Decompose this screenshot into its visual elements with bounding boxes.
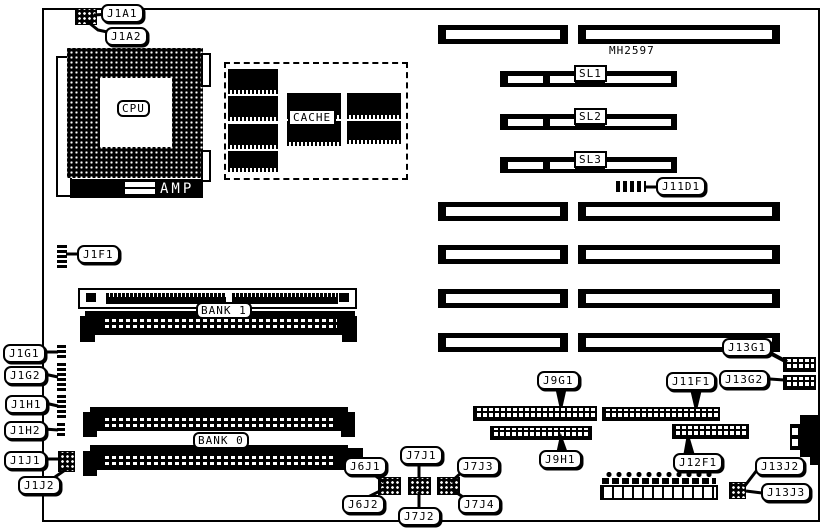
cache-label: CACHE	[288, 109, 336, 126]
j13g1-label: J13G1	[722, 338, 772, 357]
j1g1-label: J1G1	[3, 344, 46, 363]
j1f1-label: J1F1	[77, 245, 120, 264]
j1j1-label: J1J1	[4, 451, 47, 470]
sl2-label: SL2	[574, 108, 607, 125]
j13j2-label: J13J2	[755, 457, 805, 476]
motherboard-diagram: CPU AMP CACHE MH2597 SL1 SL2	[0, 0, 826, 532]
j6j2-label: J6J2	[342, 495, 385, 514]
bank1-label: BANK 1	[196, 302, 252, 319]
j7j2-label: J7J2	[398, 507, 441, 526]
bank0-label: BANK 0	[193, 432, 249, 449]
j7j4-label: J7J4	[458, 495, 501, 514]
j1j2-label: J1J2	[18, 476, 61, 495]
j1h1-label: J1H1	[5, 395, 48, 414]
j6j1-label: J6J1	[344, 457, 387, 476]
j9g1-label: J9G1	[537, 371, 580, 390]
j1a2-label: J1A2	[105, 27, 148, 46]
j11d1-label: J11D1	[656, 177, 706, 196]
cpu-label: CPU	[117, 100, 150, 117]
j13g2-label: J13G2	[719, 370, 769, 389]
j1a1-label: J1A1	[101, 4, 144, 23]
j1h2-label: J1H2	[4, 421, 47, 440]
j1g2-label: J1G2	[4, 366, 47, 385]
j12f1-label: J12F1	[673, 453, 723, 472]
j7j3-label: J7J3	[457, 457, 500, 476]
j7j1-label: J7J1	[400, 446, 443, 465]
j9h1-label: J9H1	[539, 450, 582, 469]
j13j3-label: J13J3	[761, 483, 811, 502]
sl1-label: SL1	[574, 65, 607, 82]
j11f1-label: J11F1	[666, 372, 716, 391]
sl3-label: SL3	[574, 151, 607, 168]
